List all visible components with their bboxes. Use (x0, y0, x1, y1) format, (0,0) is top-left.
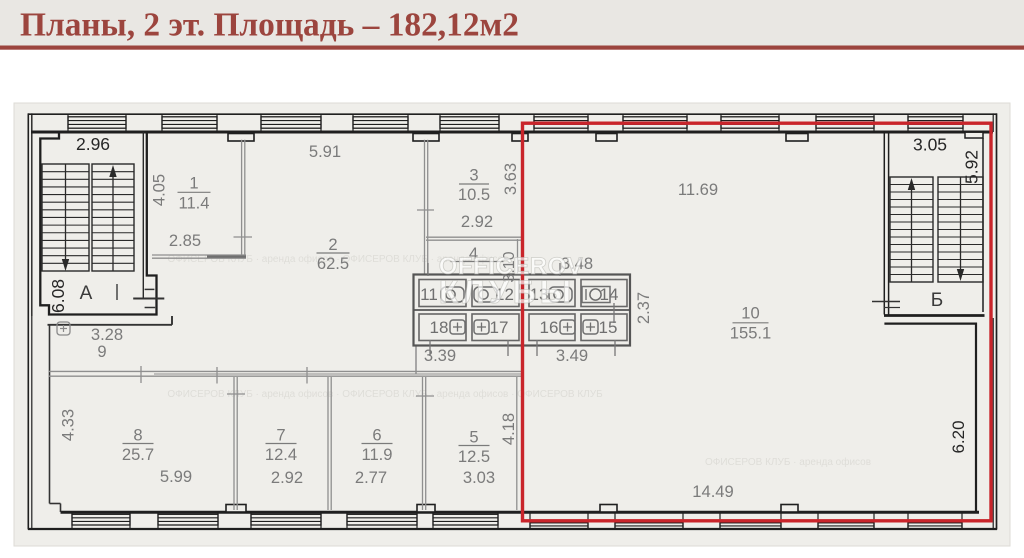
svg-text:11.69: 11.69 (678, 180, 718, 199)
svg-text:12.5: 12.5 (458, 447, 490, 466)
svg-text:8: 8 (133, 425, 142, 444)
svg-text:ОФИСЕРОВ КЛУБ · аренда офисов: ОФИСЕРОВ КЛУБ · аренда офисов (705, 456, 871, 468)
svg-text:25.7: 25.7 (122, 445, 154, 464)
svg-text:16: 16 (540, 318, 559, 337)
svg-text:155.1: 155.1 (730, 324, 772, 343)
svg-text:5.91: 5.91 (309, 142, 341, 161)
svg-text:Б: Б (931, 290, 943, 311)
svg-text:6: 6 (372, 425, 381, 444)
svg-text:3: 3 (469, 166, 478, 185)
svg-text:2.92: 2.92 (271, 468, 303, 487)
svg-text:4.33: 4.33 (59, 409, 78, 441)
svg-text:2.92: 2.92 (461, 212, 493, 231)
svg-text:2.77: 2.77 (355, 468, 387, 487)
svg-text:62.5: 62.5 (317, 254, 349, 273)
svg-text:4.18: 4.18 (499, 413, 518, 445)
svg-text:18: 18 (430, 318, 449, 337)
svg-text:14: 14 (600, 285, 619, 304)
svg-text:Планы, 2 эт. Площадь – 182,12м: Планы, 2 эт. Площадь – 182,12м2 (20, 7, 519, 44)
svg-text:11: 11 (420, 285, 438, 304)
svg-text:7: 7 (276, 425, 285, 444)
svg-text:11.9: 11.9 (361, 445, 392, 464)
svg-text:3.05: 3.05 (913, 135, 947, 155)
svg-text:17: 17 (490, 318, 509, 337)
svg-text:2.96: 2.96 (76, 134, 110, 154)
svg-text:А: А (80, 283, 93, 304)
svg-text:1: 1 (189, 174, 198, 193)
svg-text:10: 10 (741, 304, 759, 323)
svg-text:2: 2 (328, 235, 337, 254)
svg-text:9: 9 (97, 342, 106, 361)
svg-text:КЛУБЫ: КЛУБЫ (439, 274, 575, 310)
svg-text:5.99: 5.99 (160, 467, 192, 486)
svg-text:3.39: 3.39 (424, 346, 456, 365)
svg-text:6.20: 6.20 (949, 420, 968, 453)
svg-text:6.08: 6.08 (48, 279, 68, 313)
svg-text:5.92: 5.92 (962, 150, 982, 184)
svg-text:14.49: 14.49 (692, 482, 734, 501)
svg-text:3.63: 3.63 (501, 163, 520, 195)
svg-text:2.85: 2.85 (169, 231, 201, 250)
svg-text:3.49: 3.49 (556, 346, 588, 365)
svg-text:11.4: 11.4 (178, 193, 209, 212)
svg-text:10.5: 10.5 (458, 185, 490, 204)
svg-text:12.4: 12.4 (265, 445, 297, 464)
svg-text:2.37: 2.37 (634, 292, 653, 324)
svg-text:3.28: 3.28 (91, 325, 123, 344)
svg-text:4.05: 4.05 (150, 174, 169, 206)
svg-text:3.03: 3.03 (463, 468, 495, 487)
svg-text:5: 5 (469, 427, 478, 446)
